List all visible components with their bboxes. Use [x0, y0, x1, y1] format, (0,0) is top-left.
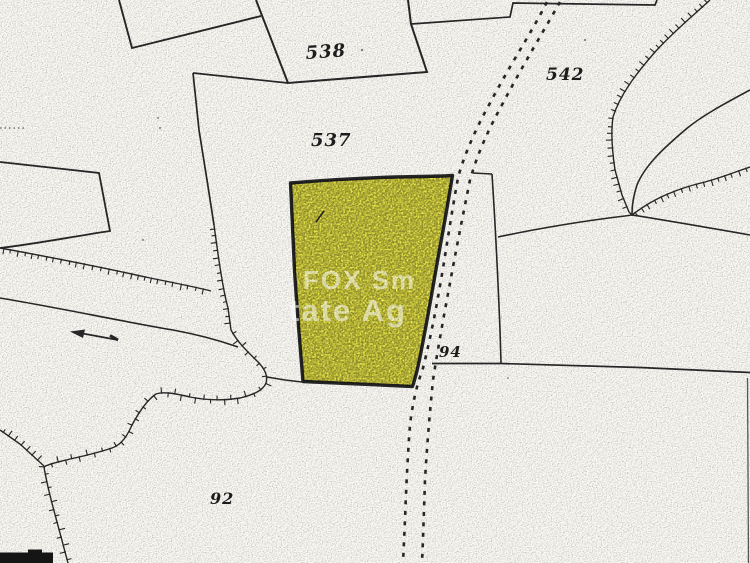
parcel-label-542: 542	[546, 65, 585, 85]
watermark-line2: tate Ag	[289, 293, 407, 328]
parcel-label-92: 92	[210, 489, 234, 508]
watermark: FOX Sm tate Ag	[289, 265, 416, 328]
parcel-label-537: 537	[311, 130, 352, 151]
parcel-label-94: 94	[439, 343, 462, 361]
road-connector-line	[473, 173, 492, 174]
watermark-line1: FOX Sm	[303, 265, 416, 295]
cadastral-map: 538 537 542 94 92 FOX Sm tate Ag	[0, 0, 750, 563]
parcel-label-538: 538	[305, 40, 347, 64]
